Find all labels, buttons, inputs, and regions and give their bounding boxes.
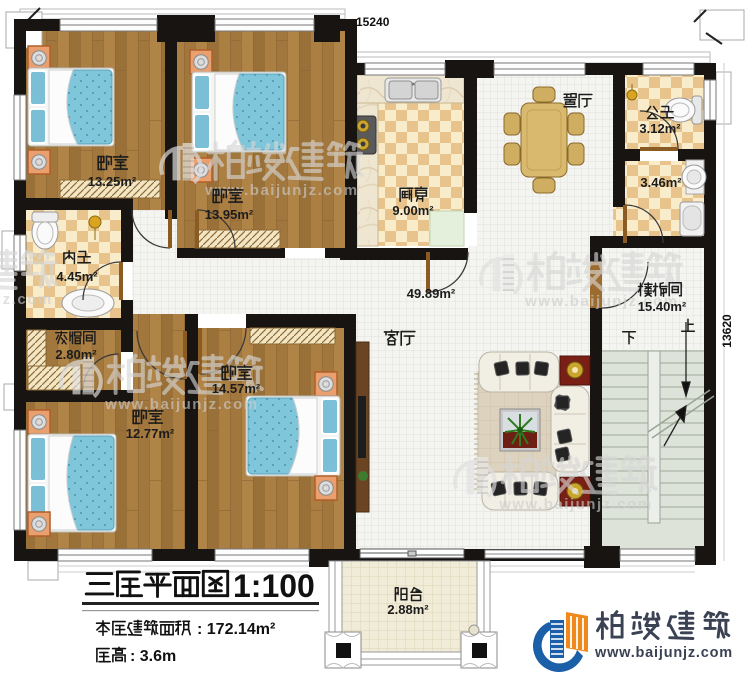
svg-text:49.89m²: 49.89m² xyxy=(407,286,456,301)
svg-text:14.57m²: 14.57m² xyxy=(212,381,261,396)
svg-text:12.77m²: 12.77m² xyxy=(126,426,175,441)
svg-text:9.00m²: 9.00m² xyxy=(392,203,434,218)
svg-text:www.baijunjz.com: www.baijunjz.com xyxy=(104,396,258,413)
svg-text:15.40m²: 15.40m² xyxy=(638,299,687,314)
svg-text:: 172.14m²: : 172.14m² xyxy=(197,621,275,638)
svg-text:1:100: 1:100 xyxy=(233,568,315,604)
svg-text:www.baijunjz.com: www.baijunjz.com xyxy=(498,496,652,513)
svg-text:www.baijunjz.com: www.baijunjz.com xyxy=(594,645,733,661)
svg-text:13.25m²: 13.25m² xyxy=(88,174,137,189)
svg-text:4.45m²: 4.45m² xyxy=(56,269,98,284)
svg-text:www.baijunjz.com: www.baijunjz.com xyxy=(0,291,53,308)
svg-text:15240: 15240 xyxy=(356,15,390,29)
svg-text:2.88m²: 2.88m² xyxy=(387,602,429,617)
svg-text:2.80m²: 2.80m² xyxy=(55,347,97,362)
svg-text:3.46m²: 3.46m² xyxy=(640,175,682,190)
svg-text:3.12m²: 3.12m² xyxy=(639,121,681,136)
svg-text:: 3.6m: : 3.6m xyxy=(130,648,176,665)
svg-text:13.95m²: 13.95m² xyxy=(205,207,254,222)
svg-text:13620: 13620 xyxy=(720,314,734,348)
svg-text:www.baijunjz.com: www.baijunjz.com xyxy=(204,182,358,199)
